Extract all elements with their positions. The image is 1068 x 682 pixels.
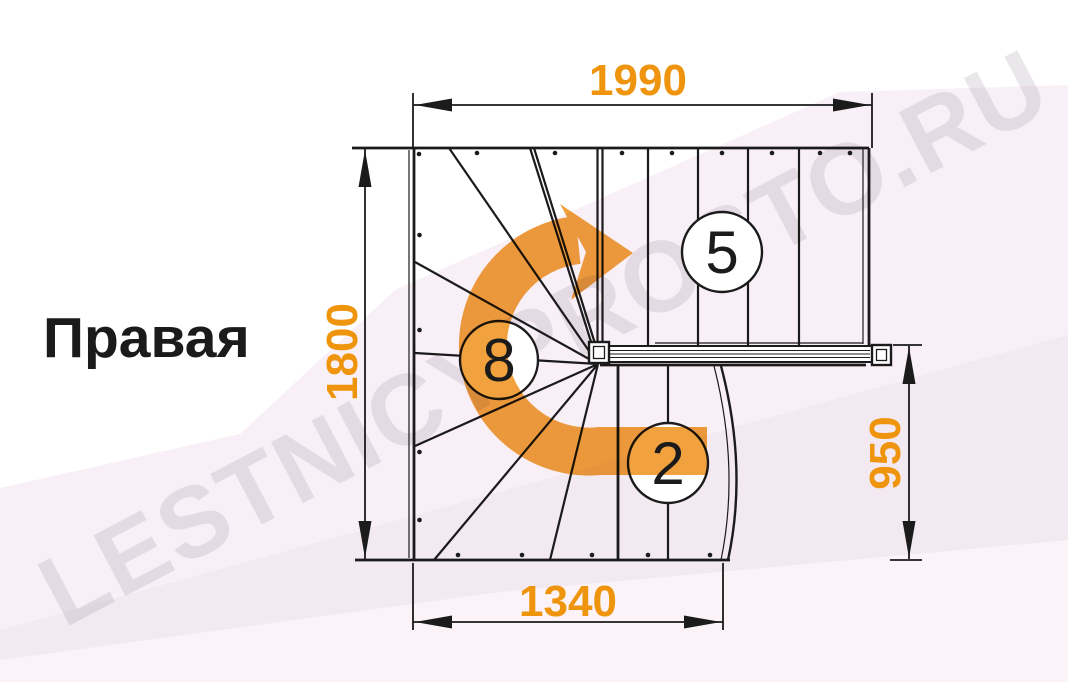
staircase-plan-drawing: LESTNICYPROSTO.RU — [0, 0, 1068, 682]
handrail — [589, 342, 891, 365]
winders-count: 8 — [482, 327, 515, 394]
dimension-right-label: 950 — [861, 416, 910, 489]
page-title: Правая — [43, 306, 250, 370]
top-flight-count: 5 — [705, 219, 738, 286]
staircase-plan-page: LESTNICYPROSTO.RU — [0, 0, 1068, 682]
newel-post-left-inner — [594, 347, 605, 359]
dimension-bottom-label: 1340 — [519, 577, 617, 626]
newel-post-right-inner — [877, 350, 887, 361]
dimension-top-label: 1990 — [589, 56, 687, 105]
dimension-left-label: 1800 — [318, 303, 367, 401]
bottom-flight-count: 2 — [651, 430, 684, 497]
